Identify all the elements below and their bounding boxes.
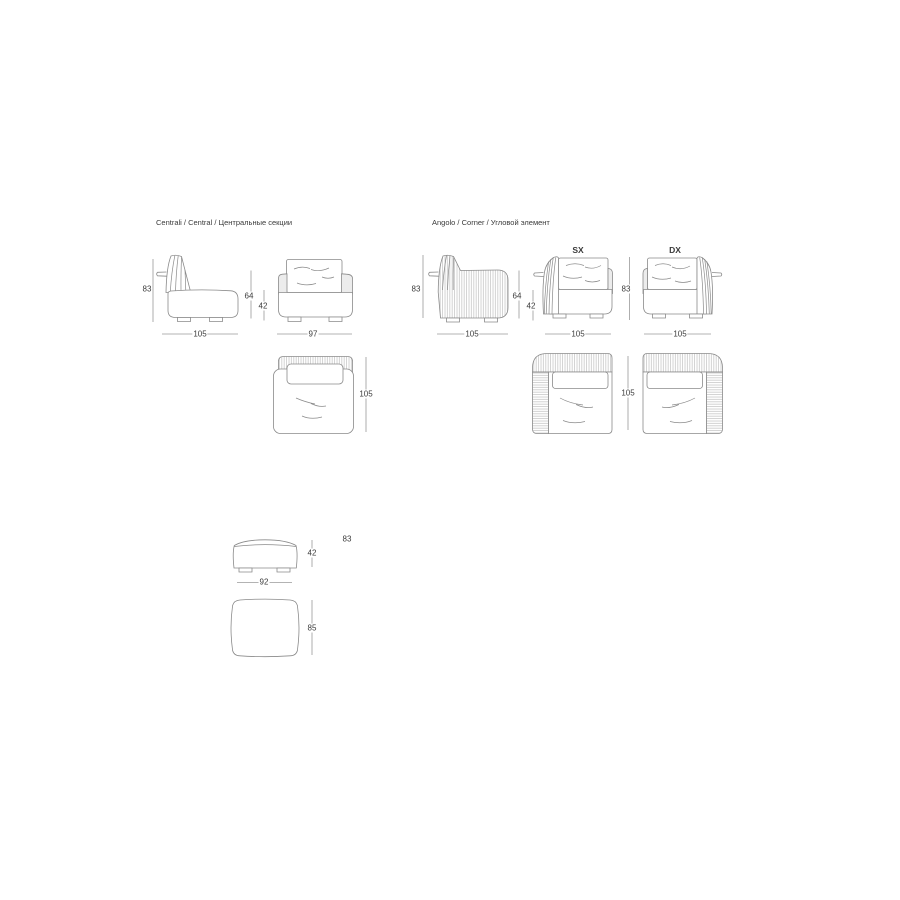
corner-side-body (438, 255, 508, 318)
corner-side-view-drawing (423, 255, 508, 334)
dim-corner-side-height: 83 (411, 285, 422, 294)
dim-central-front-width: 97 (308, 330, 319, 339)
sx-top-back-panel (533, 354, 613, 373)
dx-variant-label: DX (669, 245, 681, 255)
dim-corner-side-depth: 105 (464, 330, 479, 339)
dim-central-top-depth: 105 (358, 390, 373, 399)
corner-sx-top-view-drawing (533, 354, 629, 434)
spec-sheet-page: Centrali / Central / Центральные секции … (0, 0, 900, 900)
sx-front-corner-back-wing (543, 257, 559, 314)
dim-central-seat-height: 42 (258, 302, 269, 311)
sx-front-foot (553, 314, 566, 318)
sx-variant-label: SX (572, 245, 583, 255)
central-top-back-cushion (287, 364, 343, 384)
dim-central-back-height: 64 (244, 292, 255, 301)
dx-front-bracket (712, 273, 722, 277)
central-front-base (279, 293, 353, 318)
corner-dx-top-view-drawing (643, 354, 723, 434)
dim-pouf-width: 92 (259, 578, 270, 587)
central-side-view-drawing (153, 255, 238, 334)
central-side-foot (178, 318, 191, 322)
dim-central-side-height: 83 (142, 285, 153, 294)
central-front-foot (288, 317, 301, 322)
dx-top-back-panel (643, 354, 723, 373)
pouf-front-body (233, 540, 297, 568)
technical-drawings (0, 0, 900, 900)
dx-front-back-cushion (648, 258, 698, 290)
dx-front-corner-back-wing (697, 257, 713, 314)
pouf-front-foot (277, 568, 290, 572)
corner-sx-front-view-drawing (519, 257, 630, 334)
central-front-left-arm (279, 274, 288, 294)
dim-pouf-note-height: 83 (342, 535, 353, 544)
corner-section-title: Angolo / Corner / Угловой элемент (432, 218, 550, 228)
central-side-foot (210, 318, 223, 322)
dim-corner-top-depth: 105 (620, 389, 635, 398)
central-side-seat (168, 290, 238, 318)
sx-top-back-cushion (553, 372, 609, 389)
corner-dx-front-view-drawing (643, 257, 722, 334)
dx-top-side-panel (707, 372, 723, 434)
central-front-view-drawing (251, 260, 353, 335)
central-front-right-arm (342, 274, 353, 294)
dim-pouf-height: 42 (307, 549, 318, 558)
sx-top-side-panel (533, 372, 549, 434)
corner-side-foot (485, 318, 498, 322)
dx-top-back-cushion (647, 372, 703, 389)
pouf-front-view-drawing (233, 540, 312, 583)
dx-front-foot (653, 314, 666, 318)
corner-side-bracket (429, 272, 439, 276)
central-front-foot (329, 317, 342, 322)
pouf-front-foot (239, 568, 252, 572)
central-side-bracket (157, 272, 167, 276)
corner-side-foot (447, 318, 460, 322)
central-top-view-drawing (274, 357, 367, 434)
pouf-top-view-drawing (231, 599, 312, 657)
central-side-backrest (166, 255, 191, 292)
dim-dx-front-width: 105 (672, 330, 687, 339)
sx-front-back-cushion (559, 258, 609, 290)
pouf-top-body (231, 599, 299, 657)
central-section-title: Centrali / Central / Центральные секции (156, 218, 292, 228)
dim-corner-front-height: 83 (621, 285, 632, 294)
sx-front-bracket (534, 273, 544, 277)
dim-sx-front-width: 105 (570, 330, 585, 339)
dim-central-side-depth: 105 (192, 330, 207, 339)
dim-corner-back-height: 64 (512, 292, 523, 301)
dim-corner-seat-height: 42 (526, 302, 537, 311)
dim-pouf-top-depth: 85 (307, 624, 318, 633)
dx-front-foot (690, 314, 703, 318)
central-front-back-cushion (287, 260, 343, 293)
sx-front-foot (590, 314, 603, 318)
